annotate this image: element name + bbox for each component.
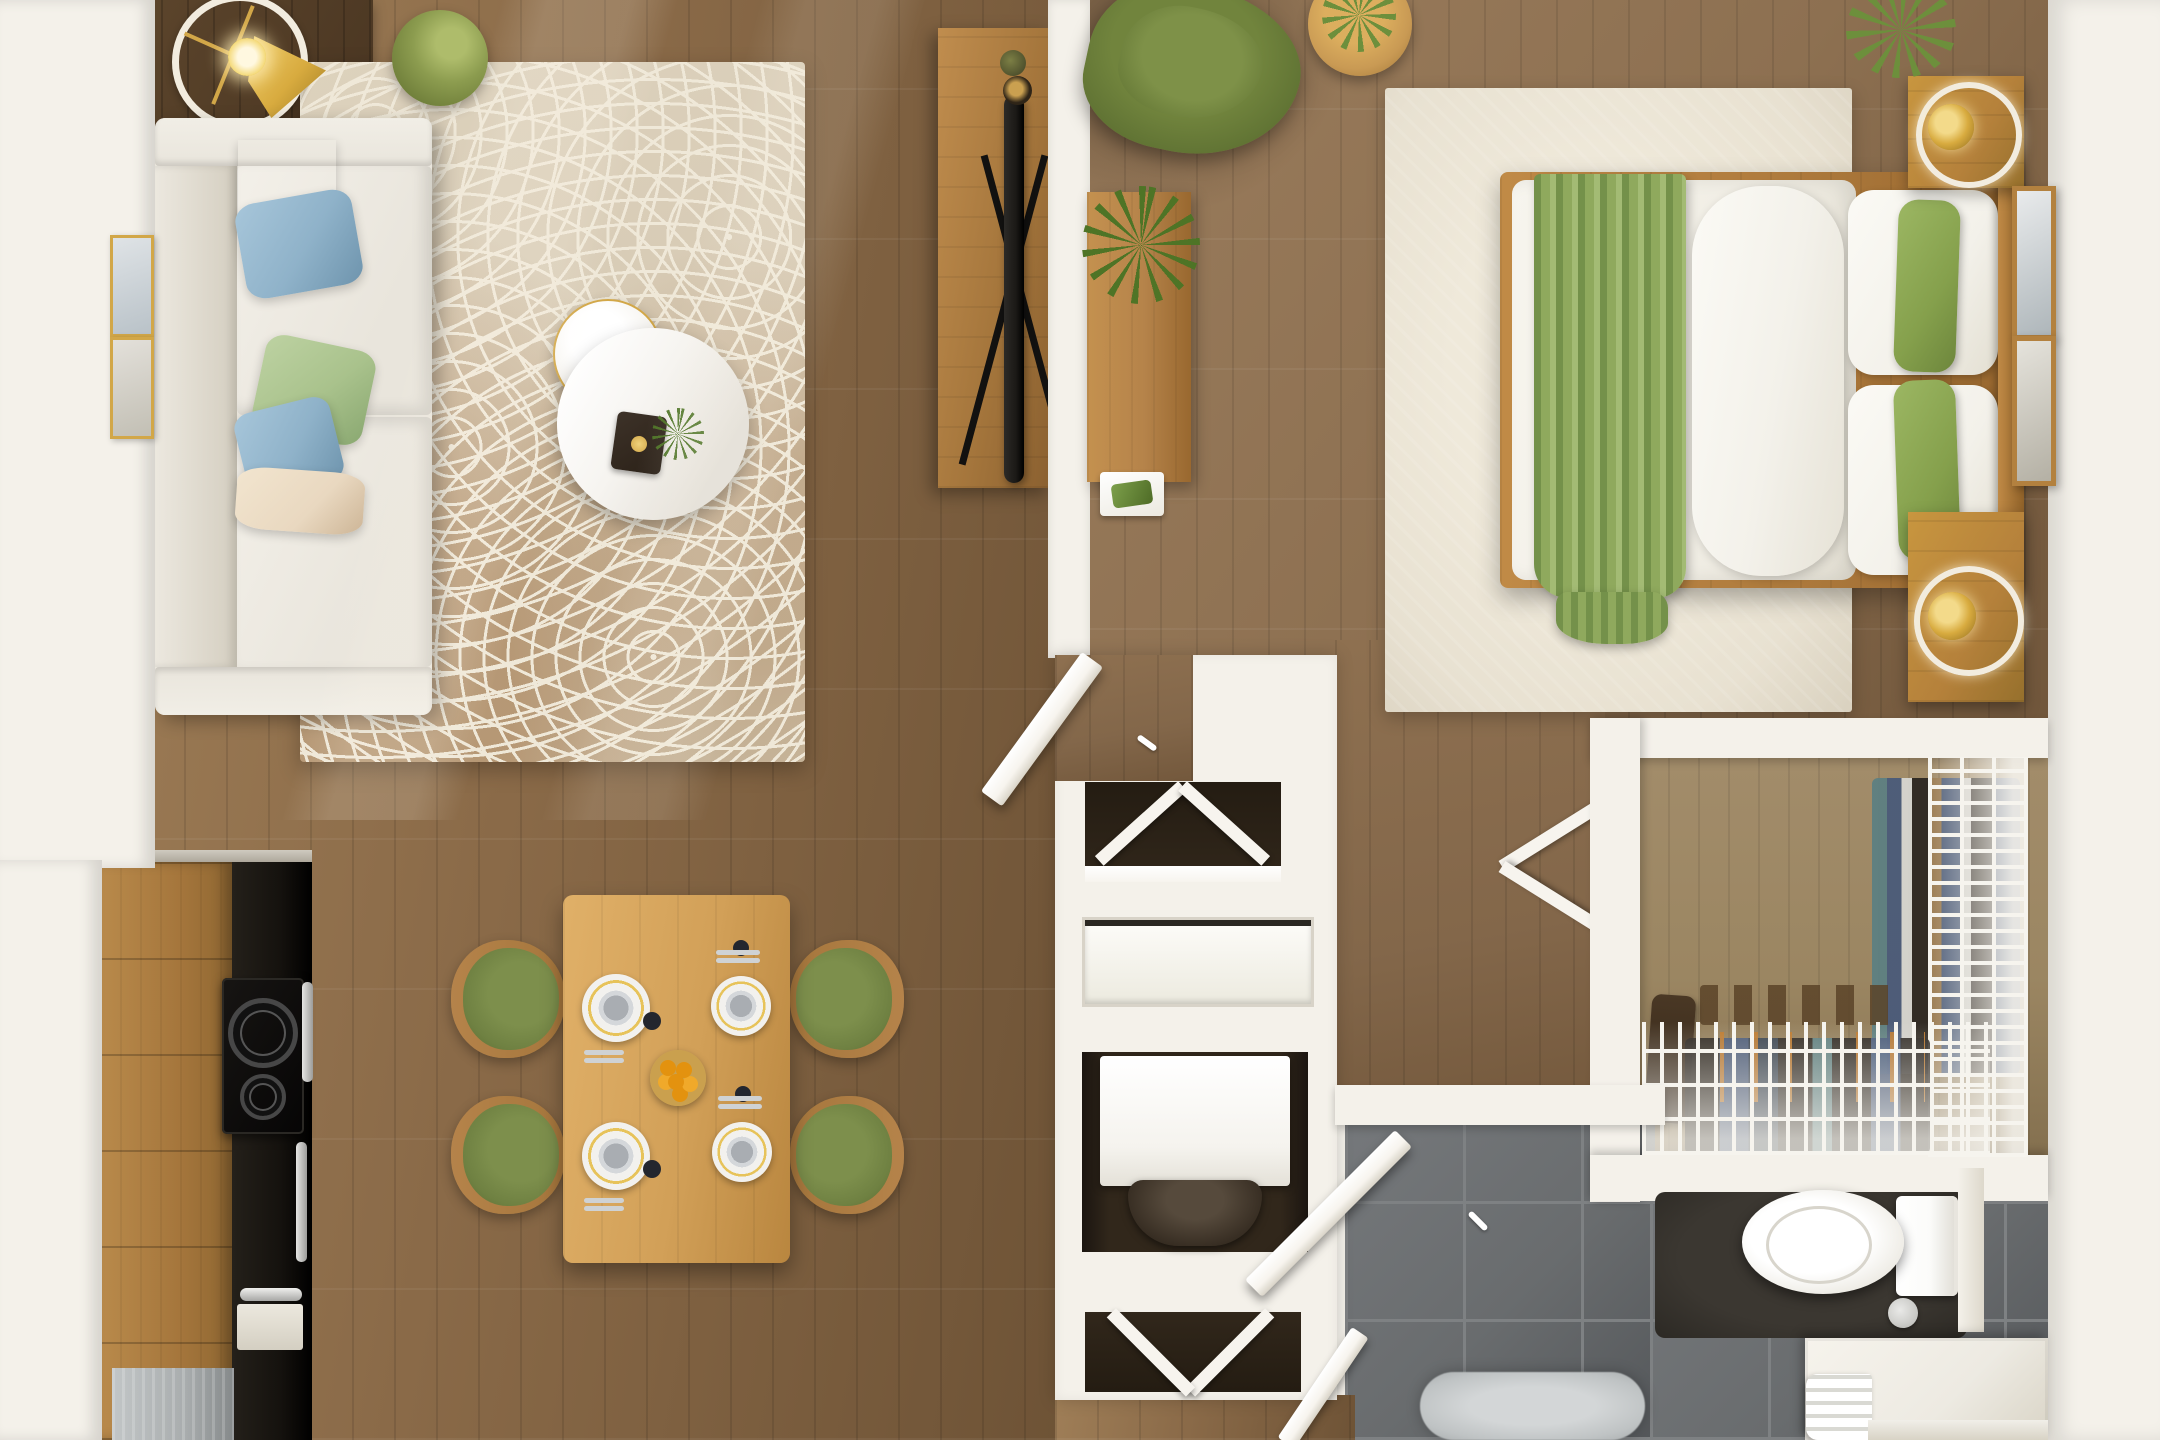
leaning-frame bbox=[2012, 186, 2056, 340]
dining-chair-seat bbox=[796, 1104, 892, 1206]
coffee-table-plant bbox=[652, 408, 704, 460]
bed-green-throw-tail bbox=[1556, 592, 1668, 644]
storage-niche bbox=[1082, 917, 1314, 1007]
toilet-tank bbox=[1896, 1196, 1958, 1296]
desk-fern-plant bbox=[1082, 186, 1200, 304]
dining-chair-seat bbox=[463, 948, 559, 1050]
table-lamp bbox=[1928, 104, 1974, 150]
throw-pillow-blue bbox=[233, 186, 366, 301]
vanity-lower-step bbox=[1868, 1420, 2048, 1440]
bathroom-ledge bbox=[1958, 1168, 1984, 1332]
tray-gold-decor bbox=[631, 436, 647, 452]
napkin-roll bbox=[733, 940, 749, 956]
napkin-roll bbox=[735, 1086, 751, 1102]
bed-green-throw bbox=[1534, 174, 1686, 598]
napkin-roll bbox=[643, 1160, 661, 1178]
cutlery bbox=[584, 1198, 624, 1203]
wall-left-lower bbox=[0, 860, 102, 1440]
sofa-backrest bbox=[155, 166, 237, 667]
decor-vase bbox=[1003, 76, 1032, 105]
place-setting-plate bbox=[582, 1122, 650, 1190]
floor-plan-render bbox=[0, 0, 2160, 1440]
wall-right bbox=[2048, 0, 2160, 1440]
bathroom-wall-top bbox=[1335, 1085, 1665, 1125]
closet-wall-top bbox=[1590, 718, 2048, 758]
dining-chair-seat bbox=[796, 948, 892, 1050]
gallery-frame bbox=[110, 235, 154, 337]
hallway-wood-floor bbox=[1335, 640, 1605, 1125]
folded-towels bbox=[1806, 1374, 1872, 1440]
bed-pillow-green-lumbar bbox=[1893, 199, 1961, 373]
oranges bbox=[660, 1060, 676, 1076]
bed-body-pillow bbox=[1692, 186, 1844, 576]
decor-vase bbox=[1000, 50, 1026, 76]
sofa-arm-bottom bbox=[155, 667, 432, 715]
arc-floor-lamp-bulb bbox=[228, 38, 266, 76]
appliance-handle-bar bbox=[296, 1142, 307, 1262]
fruit-bowl bbox=[650, 1050, 706, 1106]
drawer-handle bbox=[240, 1288, 302, 1301]
closet-wire-shelf-bottom bbox=[1642, 1022, 1990, 1155]
washer-top bbox=[1100, 1056, 1290, 1186]
cutlery bbox=[718, 1104, 762, 1109]
throw-pillow-cream bbox=[234, 466, 366, 537]
toilet-flush-plate bbox=[1888, 1298, 1918, 1328]
drawer-front bbox=[237, 1304, 303, 1350]
green-side-stool bbox=[392, 10, 488, 106]
closet-wall-left bbox=[1590, 718, 1640, 1202]
oven-handle-bar bbox=[302, 982, 313, 1082]
cooktop-burner-large bbox=[228, 998, 298, 1068]
bath-rug-fluffy bbox=[1420, 1372, 1645, 1440]
gallery-frame bbox=[110, 337, 154, 439]
tv-screen-edge bbox=[1004, 95, 1024, 483]
toilet-seat-ring bbox=[1766, 1206, 1872, 1284]
dining-chair-seat bbox=[463, 1104, 559, 1206]
place-setting-plate bbox=[582, 974, 650, 1042]
leaning-frame bbox=[2012, 336, 2056, 486]
cooktop-burner-small bbox=[240, 1074, 286, 1120]
place-setting-plate bbox=[711, 976, 771, 1036]
closet-shoes-row bbox=[1700, 985, 1900, 1025]
wall-living-bedroom-divider bbox=[1048, 0, 1090, 658]
cutlery bbox=[584, 1050, 624, 1055]
place-setting-plate bbox=[712, 1122, 772, 1182]
stainless-appliance bbox=[112, 1368, 234, 1440]
tv-console bbox=[938, 28, 1052, 488]
kitchen-cabinets bbox=[100, 862, 232, 1440]
table-lamp bbox=[1928, 592, 1976, 640]
napkin-roll bbox=[643, 1012, 661, 1030]
cutlery bbox=[716, 958, 760, 963]
bifold-sill bbox=[1085, 866, 1281, 882]
